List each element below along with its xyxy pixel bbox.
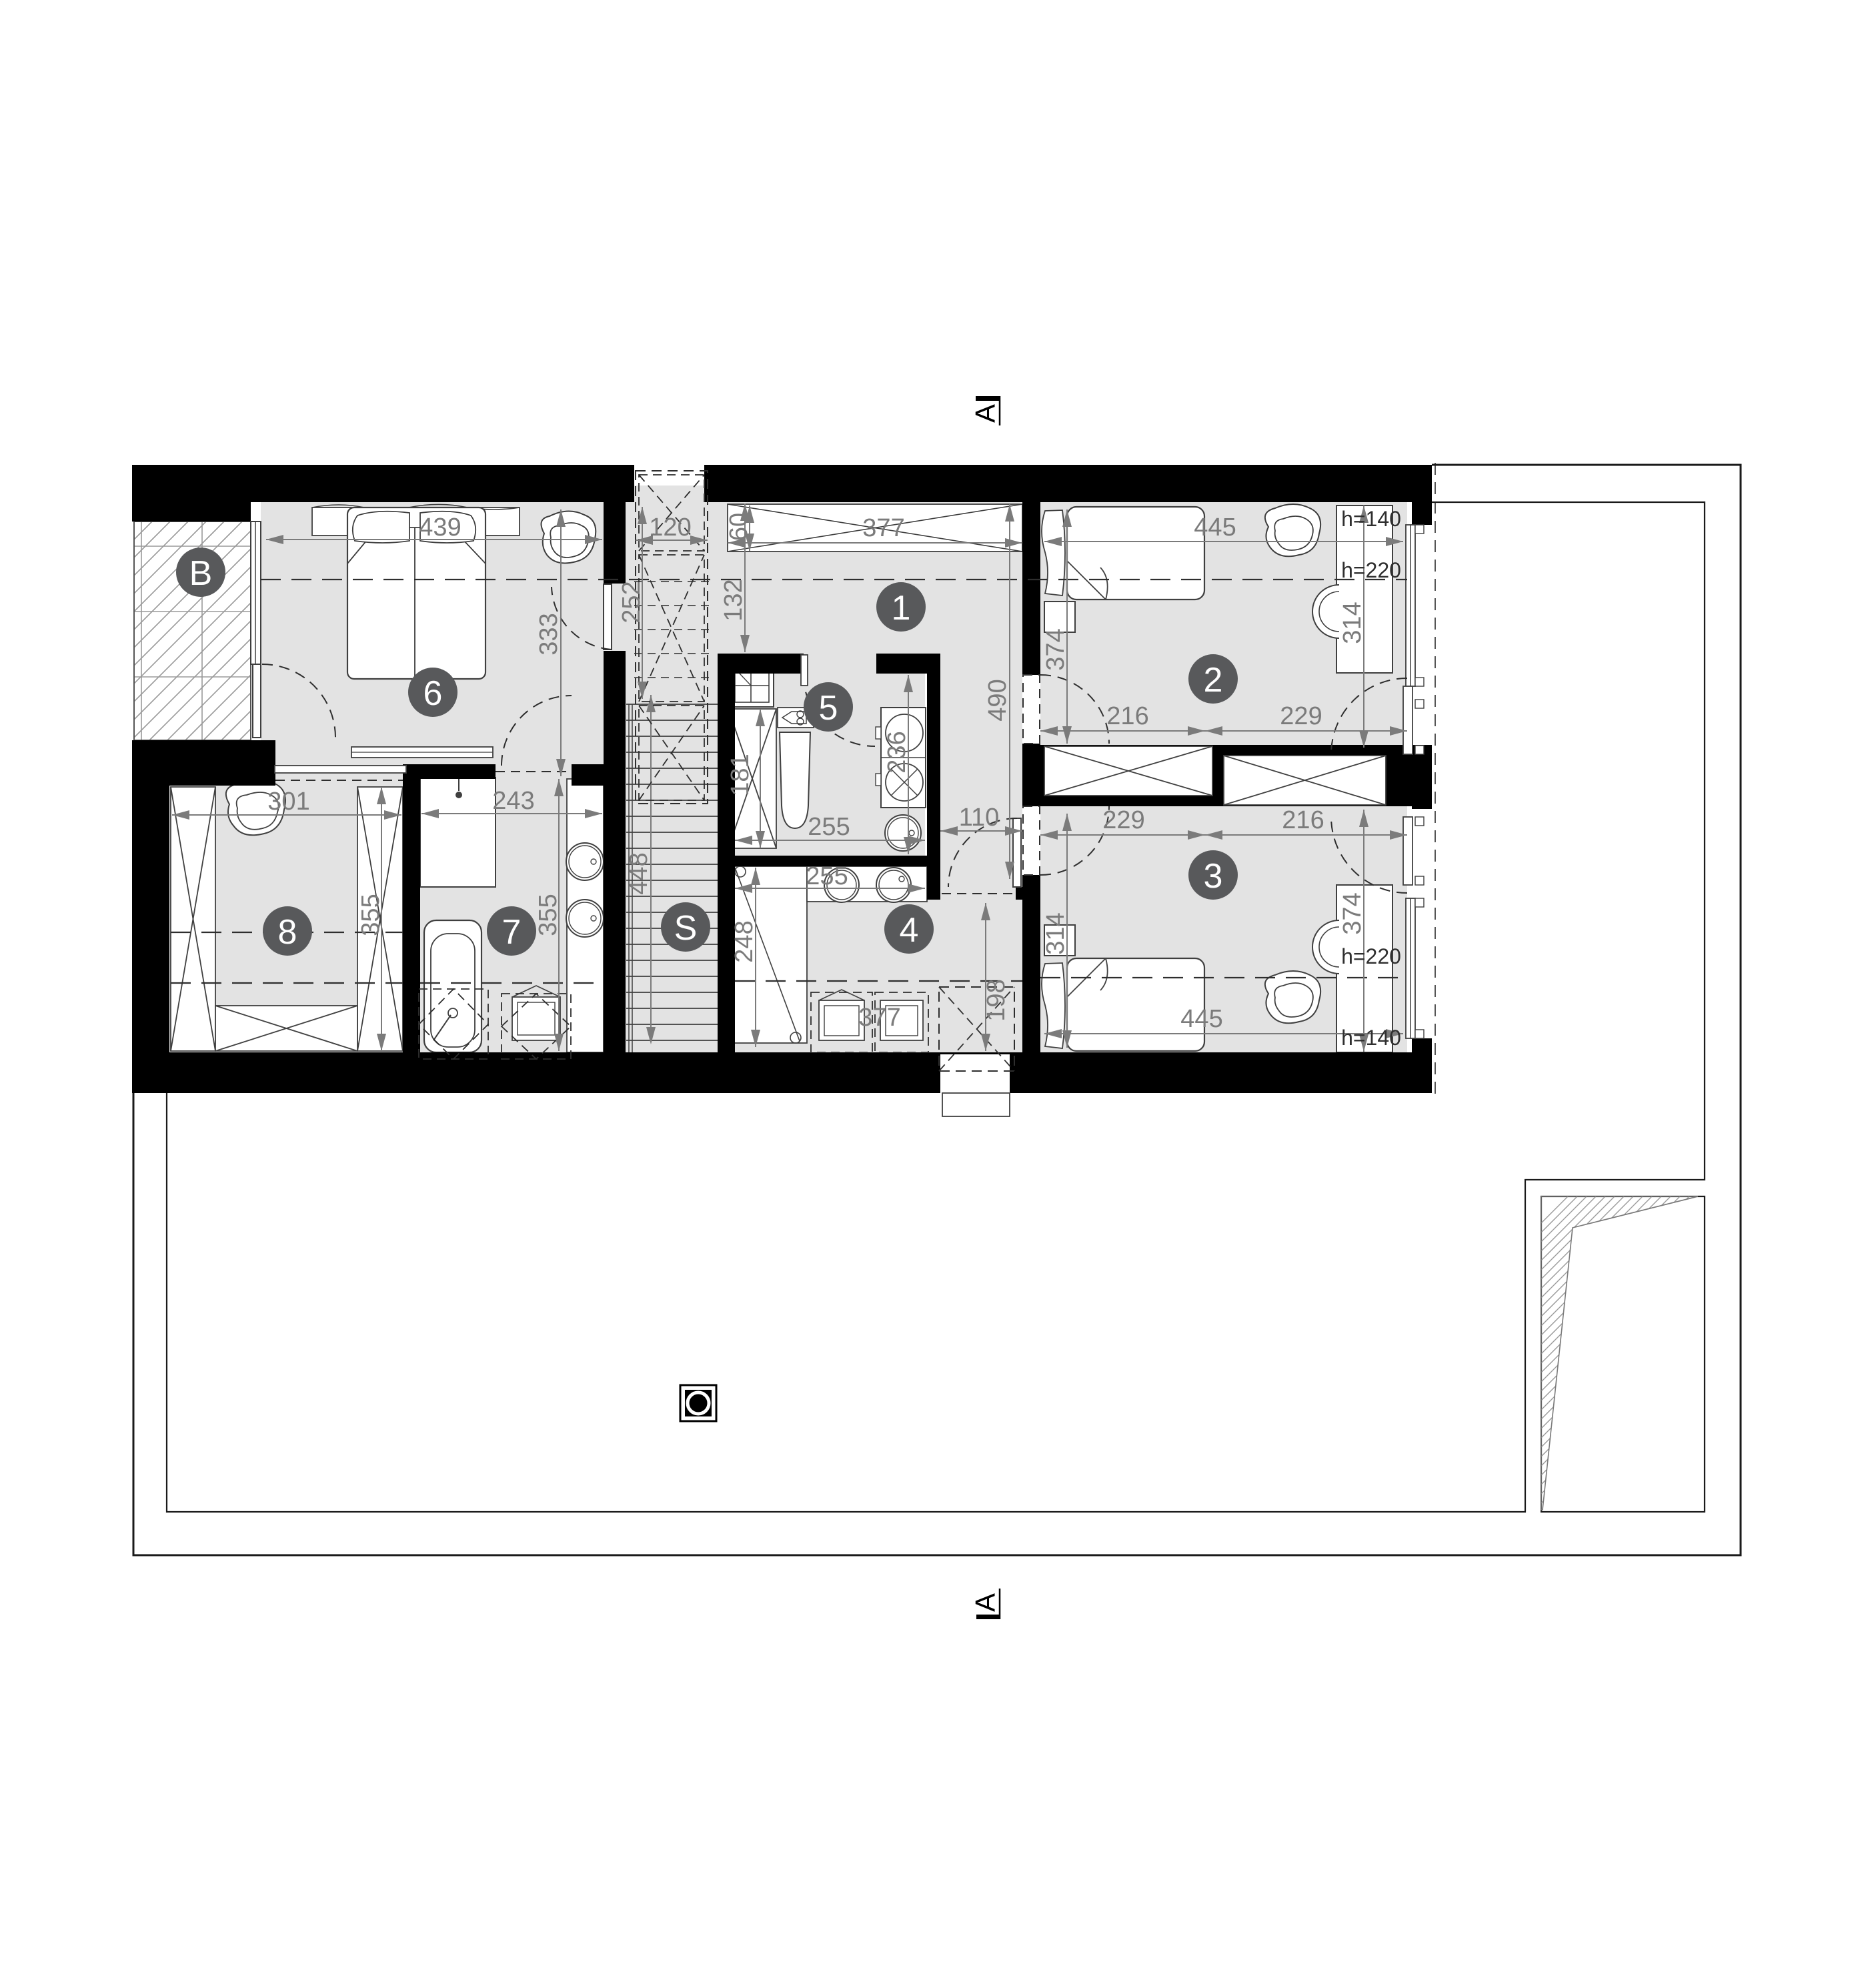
svg-text:A: A bbox=[970, 1593, 1001, 1612]
svg-text:216: 216 bbox=[1106, 702, 1148, 730]
svg-text:374: 374 bbox=[1338, 892, 1366, 934]
svg-text:198: 198 bbox=[982, 979, 1010, 1021]
svg-text:439: 439 bbox=[419, 514, 461, 542]
svg-text:301: 301 bbox=[267, 788, 309, 816]
svg-text:60: 60 bbox=[725, 513, 753, 541]
svg-text:B: B bbox=[189, 554, 213, 593]
svg-text:229: 229 bbox=[1102, 806, 1144, 834]
svg-text:h=220: h=220 bbox=[1341, 558, 1401, 582]
svg-text:7: 7 bbox=[502, 913, 522, 952]
svg-text:355: 355 bbox=[357, 894, 385, 936]
svg-text:252: 252 bbox=[618, 581, 646, 623]
svg-text:A: A bbox=[970, 404, 1001, 423]
svg-text:110: 110 bbox=[959, 804, 1000, 832]
svg-text:h=220: h=220 bbox=[1341, 944, 1401, 968]
svg-text:181: 181 bbox=[726, 754, 754, 796]
svg-text:248: 248 bbox=[730, 920, 758, 962]
svg-text:120: 120 bbox=[649, 514, 691, 542]
svg-text:5: 5 bbox=[819, 689, 838, 728]
svg-text:445: 445 bbox=[1180, 1005, 1222, 1033]
svg-text:314: 314 bbox=[1042, 912, 1070, 954]
svg-text:445: 445 bbox=[1194, 514, 1236, 542]
svg-text:216: 216 bbox=[1282, 806, 1324, 834]
svg-text:377: 377 bbox=[858, 1004, 900, 1032]
svg-text:S: S bbox=[674, 909, 698, 948]
svg-text:229: 229 bbox=[1280, 702, 1322, 730]
svg-text:2: 2 bbox=[1204, 661, 1223, 700]
svg-text:h=140: h=140 bbox=[1341, 1026, 1401, 1050]
svg-text:6: 6 bbox=[423, 674, 443, 713]
svg-text:374: 374 bbox=[1042, 628, 1070, 670]
svg-text:333: 333 bbox=[535, 613, 563, 655]
svg-text:377: 377 bbox=[862, 514, 904, 542]
svg-text:448: 448 bbox=[625, 852, 653, 894]
svg-text:255: 255 bbox=[806, 862, 848, 890]
svg-text:8: 8 bbox=[278, 913, 297, 952]
svg-text:490: 490 bbox=[984, 679, 1012, 721]
svg-text:255: 255 bbox=[808, 813, 850, 841]
svg-text:4: 4 bbox=[900, 911, 919, 950]
svg-text:132: 132 bbox=[720, 579, 748, 621]
svg-text:236: 236 bbox=[883, 731, 911, 773]
svg-text:355: 355 bbox=[534, 894, 562, 936]
svg-text:1: 1 bbox=[892, 589, 911, 628]
svg-text:h=140: h=140 bbox=[1341, 507, 1401, 531]
svg-text:243: 243 bbox=[492, 787, 534, 815]
svg-text:314: 314 bbox=[1338, 602, 1366, 644]
svg-text:3: 3 bbox=[1204, 857, 1223, 896]
